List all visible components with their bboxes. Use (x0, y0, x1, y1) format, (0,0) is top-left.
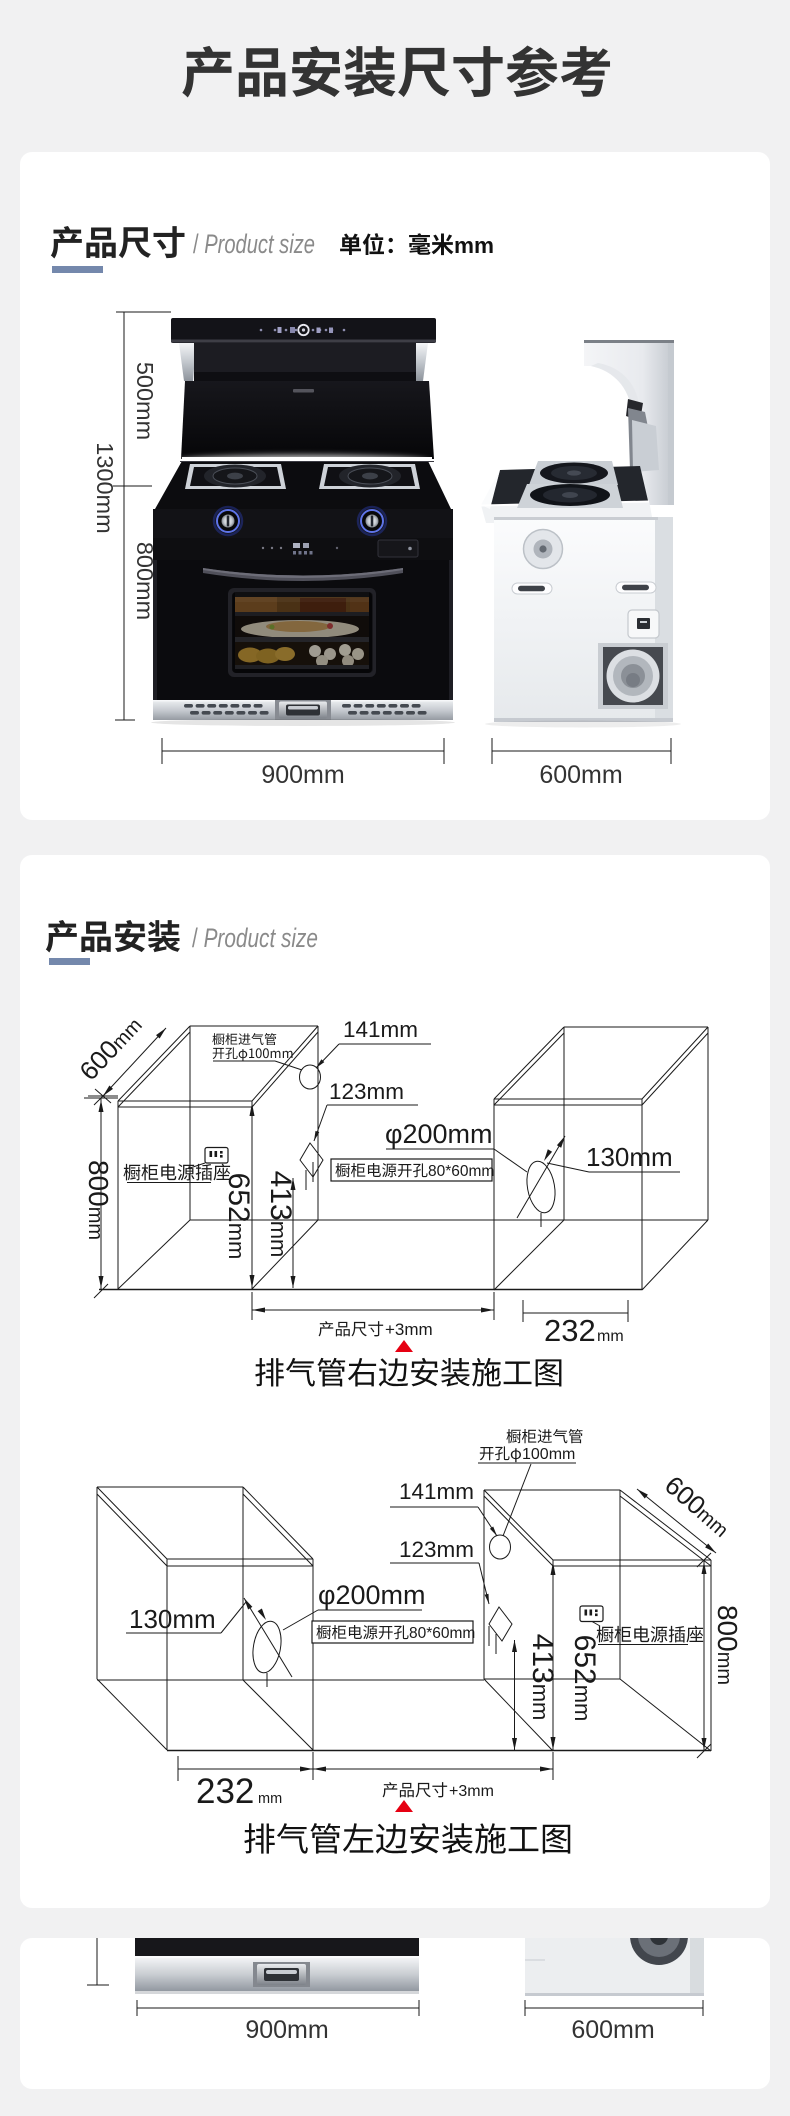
svg-text:232: 232 (544, 1313, 596, 1348)
svg-text:80*60mm: 80*60mm (409, 1625, 475, 1642)
svg-text:+3mm: +3mm (449, 1783, 494, 1800)
svg-text:100mm: 100mm (522, 1446, 575, 1463)
svg-text:130mm: 130mm (129, 1604, 216, 1634)
svg-text:/ Product size: / Product size (192, 923, 318, 953)
svg-text:900mm: 900mm (261, 761, 344, 789)
svg-text:φ200mm: φ200mm (385, 1119, 493, 1149)
svg-text:123mm: 123mm (399, 1537, 474, 1562)
svg-text:130mm: 130mm (586, 1142, 673, 1172)
svg-text:141mm: 141mm (399, 1479, 474, 1504)
svg-text:600mm: 600mm (571, 2016, 654, 2044)
svg-text:232: 232 (196, 1772, 254, 1811)
svg-text:mm: mm (258, 1791, 282, 1807)
svg-text:500mm: 500mm (132, 362, 158, 440)
svg-text:80*60mm: 80*60mm (428, 1163, 494, 1180)
svg-text:mm: mm (454, 233, 494, 258)
svg-text:141mm: 141mm (343, 1017, 418, 1042)
svg-text:900mm: 900mm (245, 2016, 328, 2044)
svg-text:mm: mm (597, 1328, 624, 1345)
svg-text:1300mm: 1300mm (92, 442, 118, 533)
svg-text:+3mm: +3mm (385, 1320, 433, 1339)
svg-text:800mm: 800mm (132, 542, 158, 620)
svg-text:600mm: 600mm (539, 761, 622, 789)
svg-text:/ Product size: / Product size (193, 229, 315, 259)
svg-text:φ200mm: φ200mm (318, 1580, 426, 1610)
svg-text:123mm: 123mm (329, 1079, 404, 1104)
